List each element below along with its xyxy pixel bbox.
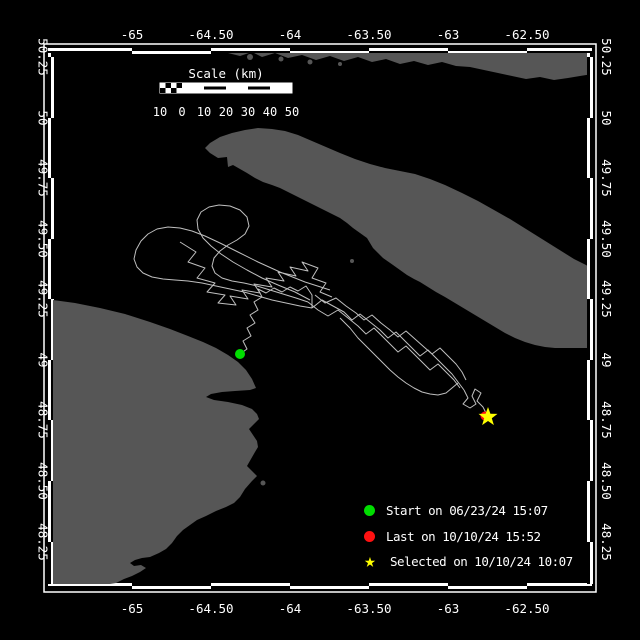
frame-checker-seg	[590, 542, 593, 584]
scale-bar-tick-label: 10	[153, 105, 167, 119]
frame-checker-seg	[587, 481, 590, 542]
track-line	[340, 318, 458, 395]
lat-label-left: 49.50	[36, 220, 51, 258]
scale-bar-tick-label: 30	[241, 105, 255, 119]
legend-last-label: Last on 10/10/24 15:52	[386, 529, 541, 544]
frame-checker-seg	[211, 583, 290, 586]
frame-checker-seg	[587, 420, 590, 481]
lon-label-top: -64.50	[188, 27, 233, 42]
scale-bar-tick-label: 40	[263, 105, 277, 119]
frame-checker-seg	[590, 420, 593, 481]
lat-label-left: 50	[36, 110, 51, 125]
frame-checker-seg	[527, 586, 592, 589]
legend-selected-label: Selected on 10/10/24 10:07	[390, 554, 573, 569]
gaspe-peninsula	[53, 300, 259, 584]
frame-checker-seg	[590, 239, 593, 299]
frame-checker-seg	[448, 583, 527, 586]
selected-marker-star-icon: ★	[361, 556, 379, 567]
frame-checker-seg	[369, 583, 448, 586]
track-line	[197, 205, 310, 302]
legend-row-last: Last on 10/10/24 15:52	[364, 528, 541, 544]
scale-box	[226, 83, 248, 93]
frame-checker-seg	[448, 586, 527, 589]
scale-checker-cell	[166, 88, 172, 93]
lat-label-right: 49.25	[599, 280, 614, 318]
small-island	[279, 57, 284, 62]
track-line	[312, 300, 464, 390]
lat-label-left: 48.75	[36, 401, 51, 439]
small-island	[261, 481, 266, 486]
frame-checker-seg	[590, 360, 593, 420]
anticosti-island	[205, 128, 592, 348]
scale-checker-cell	[160, 83, 166, 88]
frame-checker-seg	[132, 48, 211, 51]
legend-row-start: Start on 06/23/24 15:07	[364, 502, 548, 518]
scale-checker-cell	[171, 83, 177, 88]
lat-label-left: 48.25	[36, 523, 51, 561]
scale-checker-cell	[166, 83, 172, 88]
scale-checker-cell	[177, 83, 183, 88]
scale-checker-cell	[160, 88, 166, 93]
frame-checker-seg	[369, 48, 448, 51]
frame-checker-seg	[48, 51, 132, 54]
scale-box-stripe	[248, 87, 270, 90]
lon-label-top: -63.50	[346, 27, 391, 42]
frame-checker-seg	[369, 586, 448, 589]
lat-label-left: 48.50	[36, 462, 51, 500]
frame-checker-seg	[132, 51, 211, 54]
lat-label-right: 48.25	[599, 523, 614, 561]
scale-bar-tick-label: 10	[197, 105, 211, 119]
frame-checker-seg	[590, 57, 593, 118]
track-markers[interactable]	[235, 349, 498, 425]
lat-label-right: 50.25	[599, 38, 614, 76]
frame-checker-seg	[587, 542, 590, 584]
frame-checker-seg	[587, 239, 590, 299]
start-marker-icon	[364, 505, 375, 516]
frame-checker-seg	[590, 299, 593, 360]
lat-label-right: 50	[599, 110, 614, 125]
frame-checker-seg	[527, 48, 592, 51]
frame-checker-seg	[590, 118, 593, 178]
frame-checker-seg	[132, 583, 211, 586]
frame-checker-seg	[587, 118, 590, 178]
frame-checker-seg	[587, 57, 590, 118]
lon-label-bottom: -64.50	[188, 601, 233, 616]
legend-start-label: Start on 06/23/24 15:07	[386, 503, 548, 518]
lat-label-right: 49.75	[599, 159, 614, 197]
scale-box	[270, 83, 292, 93]
frame-checker-seg	[211, 586, 290, 589]
frame-checker-seg	[587, 53, 590, 57]
frame-checker-seg	[290, 583, 369, 586]
lon-label-top: -64	[279, 27, 302, 42]
scale-box	[182, 83, 204, 93]
lon-label-top: -65	[121, 27, 144, 42]
map-canvas[interactable]: Scale (km)1001020304050 -65-65-64.50-64.…	[0, 0, 640, 640]
frame-checker-seg	[132, 586, 211, 589]
track-line	[308, 302, 460, 388]
lon-label-top: -62.50	[504, 27, 549, 42]
start-position-marker[interactable]	[235, 349, 245, 359]
scale-checker-cell	[171, 88, 177, 93]
lat-label-left: 49	[36, 352, 51, 367]
selected-position-star-marker[interactable]	[479, 407, 498, 425]
lat-label-left: 49.75	[36, 159, 51, 197]
lat-label-right: 48.50	[599, 462, 614, 500]
frame-checker-seg	[590, 53, 593, 57]
legend-row-selected: ★ Selected on 10/10/24 10:07	[364, 553, 573, 569]
frame-checker-seg	[590, 178, 593, 239]
north-shore-coastline	[228, 52, 592, 80]
frame-checker-seg	[290, 48, 369, 51]
scale-box-stripe	[204, 87, 226, 90]
tracking-map-window: Scale (km)1001020304050 -65-65-64.50-64.…	[0, 0, 640, 640]
lat-label-right: 48.75	[599, 401, 614, 439]
lon-label-bottom: -64	[279, 601, 302, 616]
frame-checker-seg	[48, 48, 132, 51]
scale-bar-tick-label: 0	[178, 105, 185, 119]
lat-label-right: 49.50	[599, 220, 614, 258]
frame-checker-seg	[587, 299, 590, 360]
lat-label-left: 49.25	[36, 280, 51, 318]
lon-label-bottom: -63	[437, 601, 460, 616]
frame-checker-seg	[211, 48, 290, 51]
track-line	[315, 295, 466, 380]
track-line	[240, 286, 312, 354]
small-island	[350, 259, 354, 263]
small-island	[338, 62, 342, 66]
small-island	[308, 60, 313, 65]
frame-checker-seg	[48, 586, 132, 589]
scale-bar-tick-label: 20	[219, 105, 233, 119]
scale-bar-title: Scale (km)	[188, 66, 263, 81]
lon-label-top: -63	[437, 27, 460, 42]
frame-checker-seg	[527, 583, 592, 586]
frame-checker-seg	[290, 586, 369, 589]
lon-label-bottom: -63.50	[346, 601, 391, 616]
scale-bar-tick-label: 50	[285, 105, 299, 119]
frame-checker-seg	[590, 481, 593, 542]
lat-label-right: 49	[599, 352, 614, 367]
scale-bar: Scale (km)1001020304050	[153, 66, 299, 119]
lat-label-left: 50.25	[36, 38, 51, 76]
lon-label-bottom: -62.50	[504, 601, 549, 616]
frame-checker-seg	[448, 48, 527, 51]
frame-checker-seg	[587, 360, 590, 420]
small-island	[247, 54, 253, 60]
last-marker-icon	[364, 531, 375, 542]
lon-label-bottom: -65	[121, 601, 144, 616]
frame-checker-seg	[587, 178, 590, 239]
scale-checker-cell	[177, 88, 183, 93]
